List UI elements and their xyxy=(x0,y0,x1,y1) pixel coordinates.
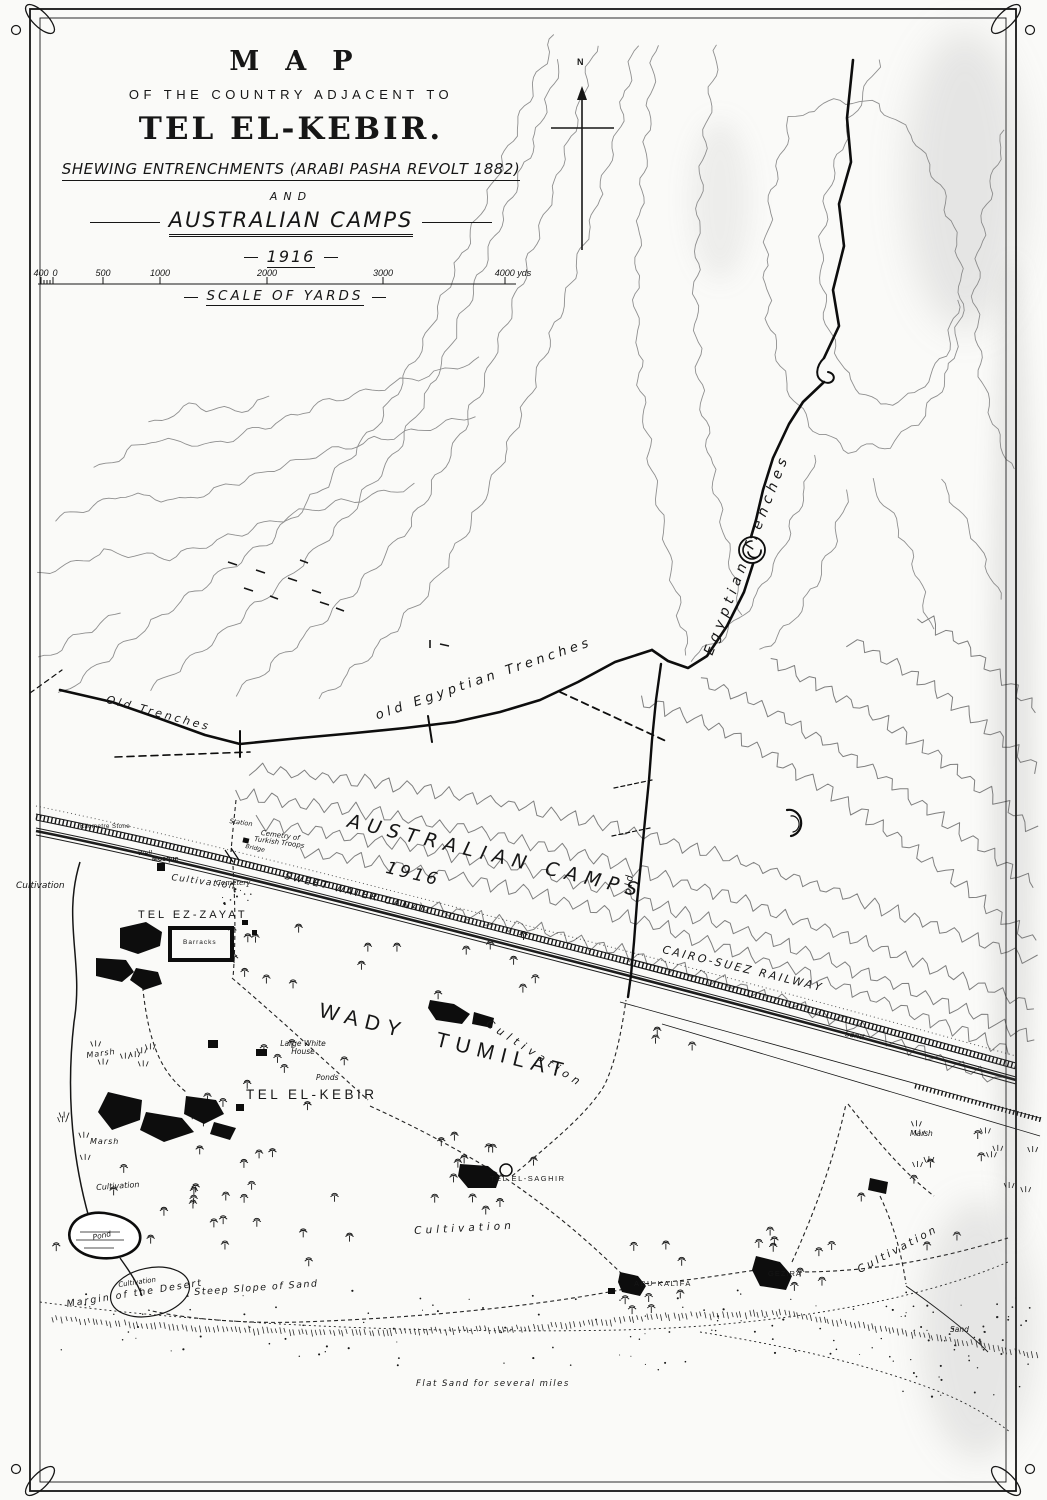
label-gezira: GEZIRA xyxy=(768,1270,802,1278)
label-cemetery: Cemetery xyxy=(216,880,250,887)
label-ponds: Ponds xyxy=(316,1074,339,1082)
title-dash xyxy=(90,222,160,223)
label-cultivation-left-edge: Cultivation xyxy=(16,882,65,891)
scale-tick-label: 500 xyxy=(95,268,110,278)
map-and-word: AND xyxy=(52,190,530,203)
label-mosque: Mosque xyxy=(152,856,178,863)
title-block: MAP OF THE COUNTRY ADJACENT TO TEL EL-KE… xyxy=(52,46,530,268)
scale-tick-label: 0 xyxy=(52,268,57,278)
scale-caption: SCALE OF YARDS xyxy=(206,288,363,306)
desert-dash-marks xyxy=(228,560,449,648)
title-dash xyxy=(324,257,338,258)
cairo-suez-railway-line xyxy=(36,806,1016,1069)
scale-bar-line xyxy=(38,277,516,284)
label-barracks: Barracks xyxy=(183,940,217,947)
north-label: N xyxy=(577,57,584,67)
pond-shape xyxy=(69,1213,194,1324)
scale-dash xyxy=(184,297,198,298)
scale-dash xyxy=(372,297,386,298)
label-large-white-house: Large White House xyxy=(276,1040,330,1056)
scale-tick-label: 2000 xyxy=(257,268,277,278)
label-tel-ez-zayat: TEL EZ-ZAYAT xyxy=(138,910,248,922)
label-tel-el-saghir: TEL EL-SAGHIR xyxy=(490,1175,566,1183)
scale-caption-row: SCALE OF YARDS xyxy=(160,288,410,306)
map-title-word: MAP xyxy=(52,46,530,77)
label-tel-el-kebir: TEL EL-KEBIR xyxy=(246,1088,378,1102)
label-well: Well xyxy=(138,850,152,857)
label-sand-bottom-right: Sand xyxy=(950,1326,969,1334)
scale-tick-label: 400 xyxy=(33,268,48,278)
map-camps-title: AUSTRALIAN CAMPS xyxy=(169,208,414,237)
title-dash xyxy=(422,222,492,223)
label-marsh-right: Marsh xyxy=(910,1130,933,1138)
title-dash xyxy=(244,257,258,258)
scale-tick-label: 1000 xyxy=(150,268,170,278)
map-page: MAP OF THE COUNTRY ADJACENT TO TEL EL-KE… xyxy=(0,0,1047,1500)
label-flat-sand: Flat Sand for several miles xyxy=(416,1380,570,1389)
map-shewing-line: SHEWING ENTRENCHMENTS (ARABI PASHA REVOL… xyxy=(62,160,520,181)
label-kilometre-stone: Kilometre Stone xyxy=(80,824,130,830)
north-arrow xyxy=(551,86,614,250)
map-subtitle: OF THE COUNTRY ADJACENT TO xyxy=(52,87,530,102)
scale-tick-label: 4000 yds xyxy=(495,268,532,278)
scale-tick-label: 3000 xyxy=(373,268,393,278)
label-abu-kalifa: ABU KALIFA xyxy=(634,1280,692,1288)
steep-slope-hatching xyxy=(52,1309,1038,1358)
map-place-title: TEL EL-KEBIR. xyxy=(52,111,530,147)
map-year: 1916 xyxy=(267,247,316,268)
label-marsh-lower-left: Marsh xyxy=(90,1138,119,1146)
